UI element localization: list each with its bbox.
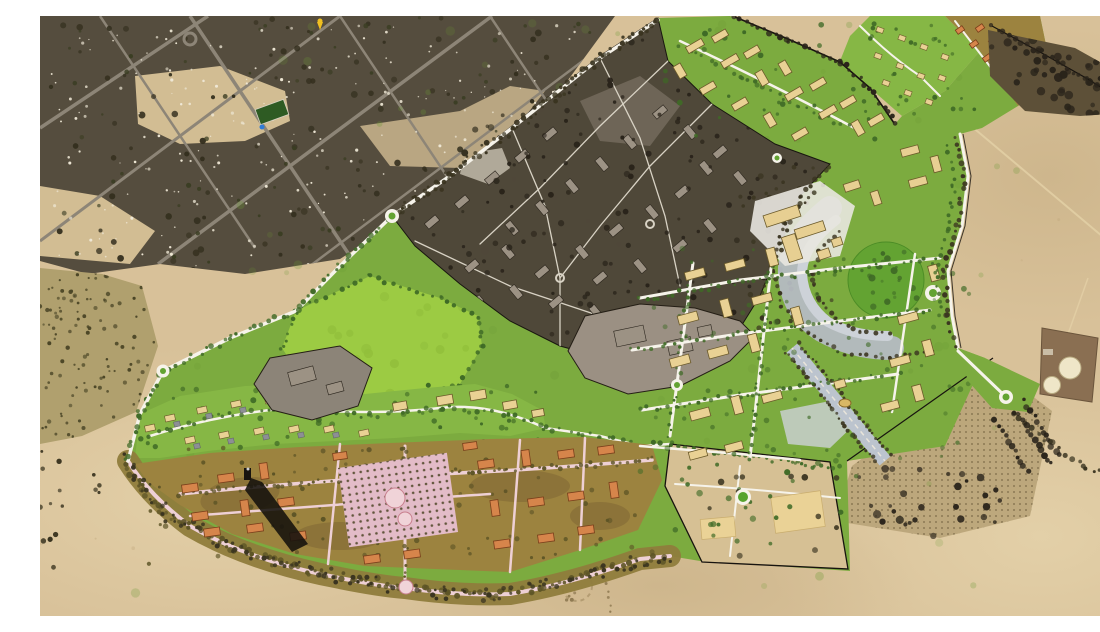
- sports-lot-small: [700, 517, 736, 540]
- crescent-lawn: [848, 242, 924, 318]
- masterplan-map: [40, 16, 1100, 616]
- plant-shed: [1043, 349, 1053, 355]
- pink-roundabout-2: [399, 580, 413, 594]
- pink-roundabout-1: [398, 512, 412, 526]
- boulevard-fountain: [839, 399, 851, 407]
- sports-lot-large: [771, 491, 826, 534]
- map-canvas: [40, 16, 1100, 616]
- water-tank-1: [1059, 357, 1081, 379]
- plaza-rotunda: [385, 488, 405, 508]
- chimney-cap: [247, 468, 250, 471]
- water-tank-2: [1044, 377, 1061, 394]
- pink-plaza: [338, 453, 458, 548]
- swimming-pool: [260, 125, 265, 130]
